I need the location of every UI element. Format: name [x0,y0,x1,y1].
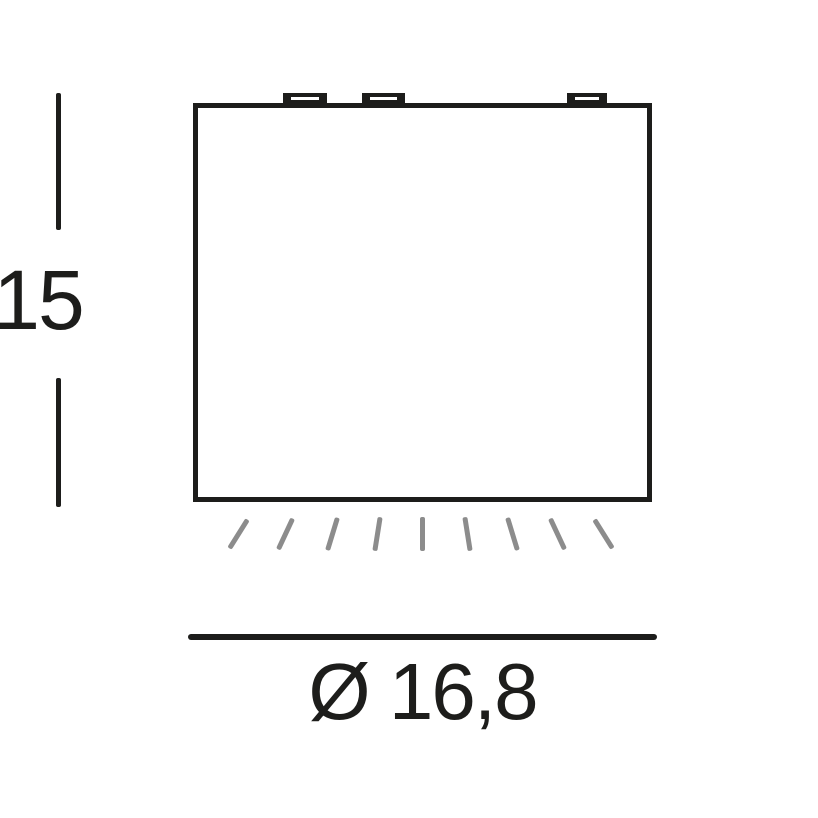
light-ray-icon [372,517,382,551]
light-ray-icon [420,517,425,551]
height-dimension-line-upper [56,93,61,230]
light-ray-icon [276,518,295,551]
light-ray-icon [462,517,472,551]
fixture-body [193,103,652,502]
light-ray-icon [227,518,249,549]
height-dimension-line-lower [56,378,61,507]
diameter-dimension-label: Ø 16,8 [193,652,652,732]
light-ray-icon [505,517,520,551]
light-rays [193,510,652,560]
height-dimension-label: 15 [0,258,118,342]
light-ray-icon [548,518,567,551]
mounting-tab [283,93,327,107]
diameter-dimension-line [188,634,657,640]
mounting-tab [362,93,405,107]
light-ray-icon [325,517,340,551]
mounting-tab [567,93,607,107]
light-ray-icon [592,518,614,549]
dimension-drawing: 15 Ø 16,8 [0,0,818,818]
